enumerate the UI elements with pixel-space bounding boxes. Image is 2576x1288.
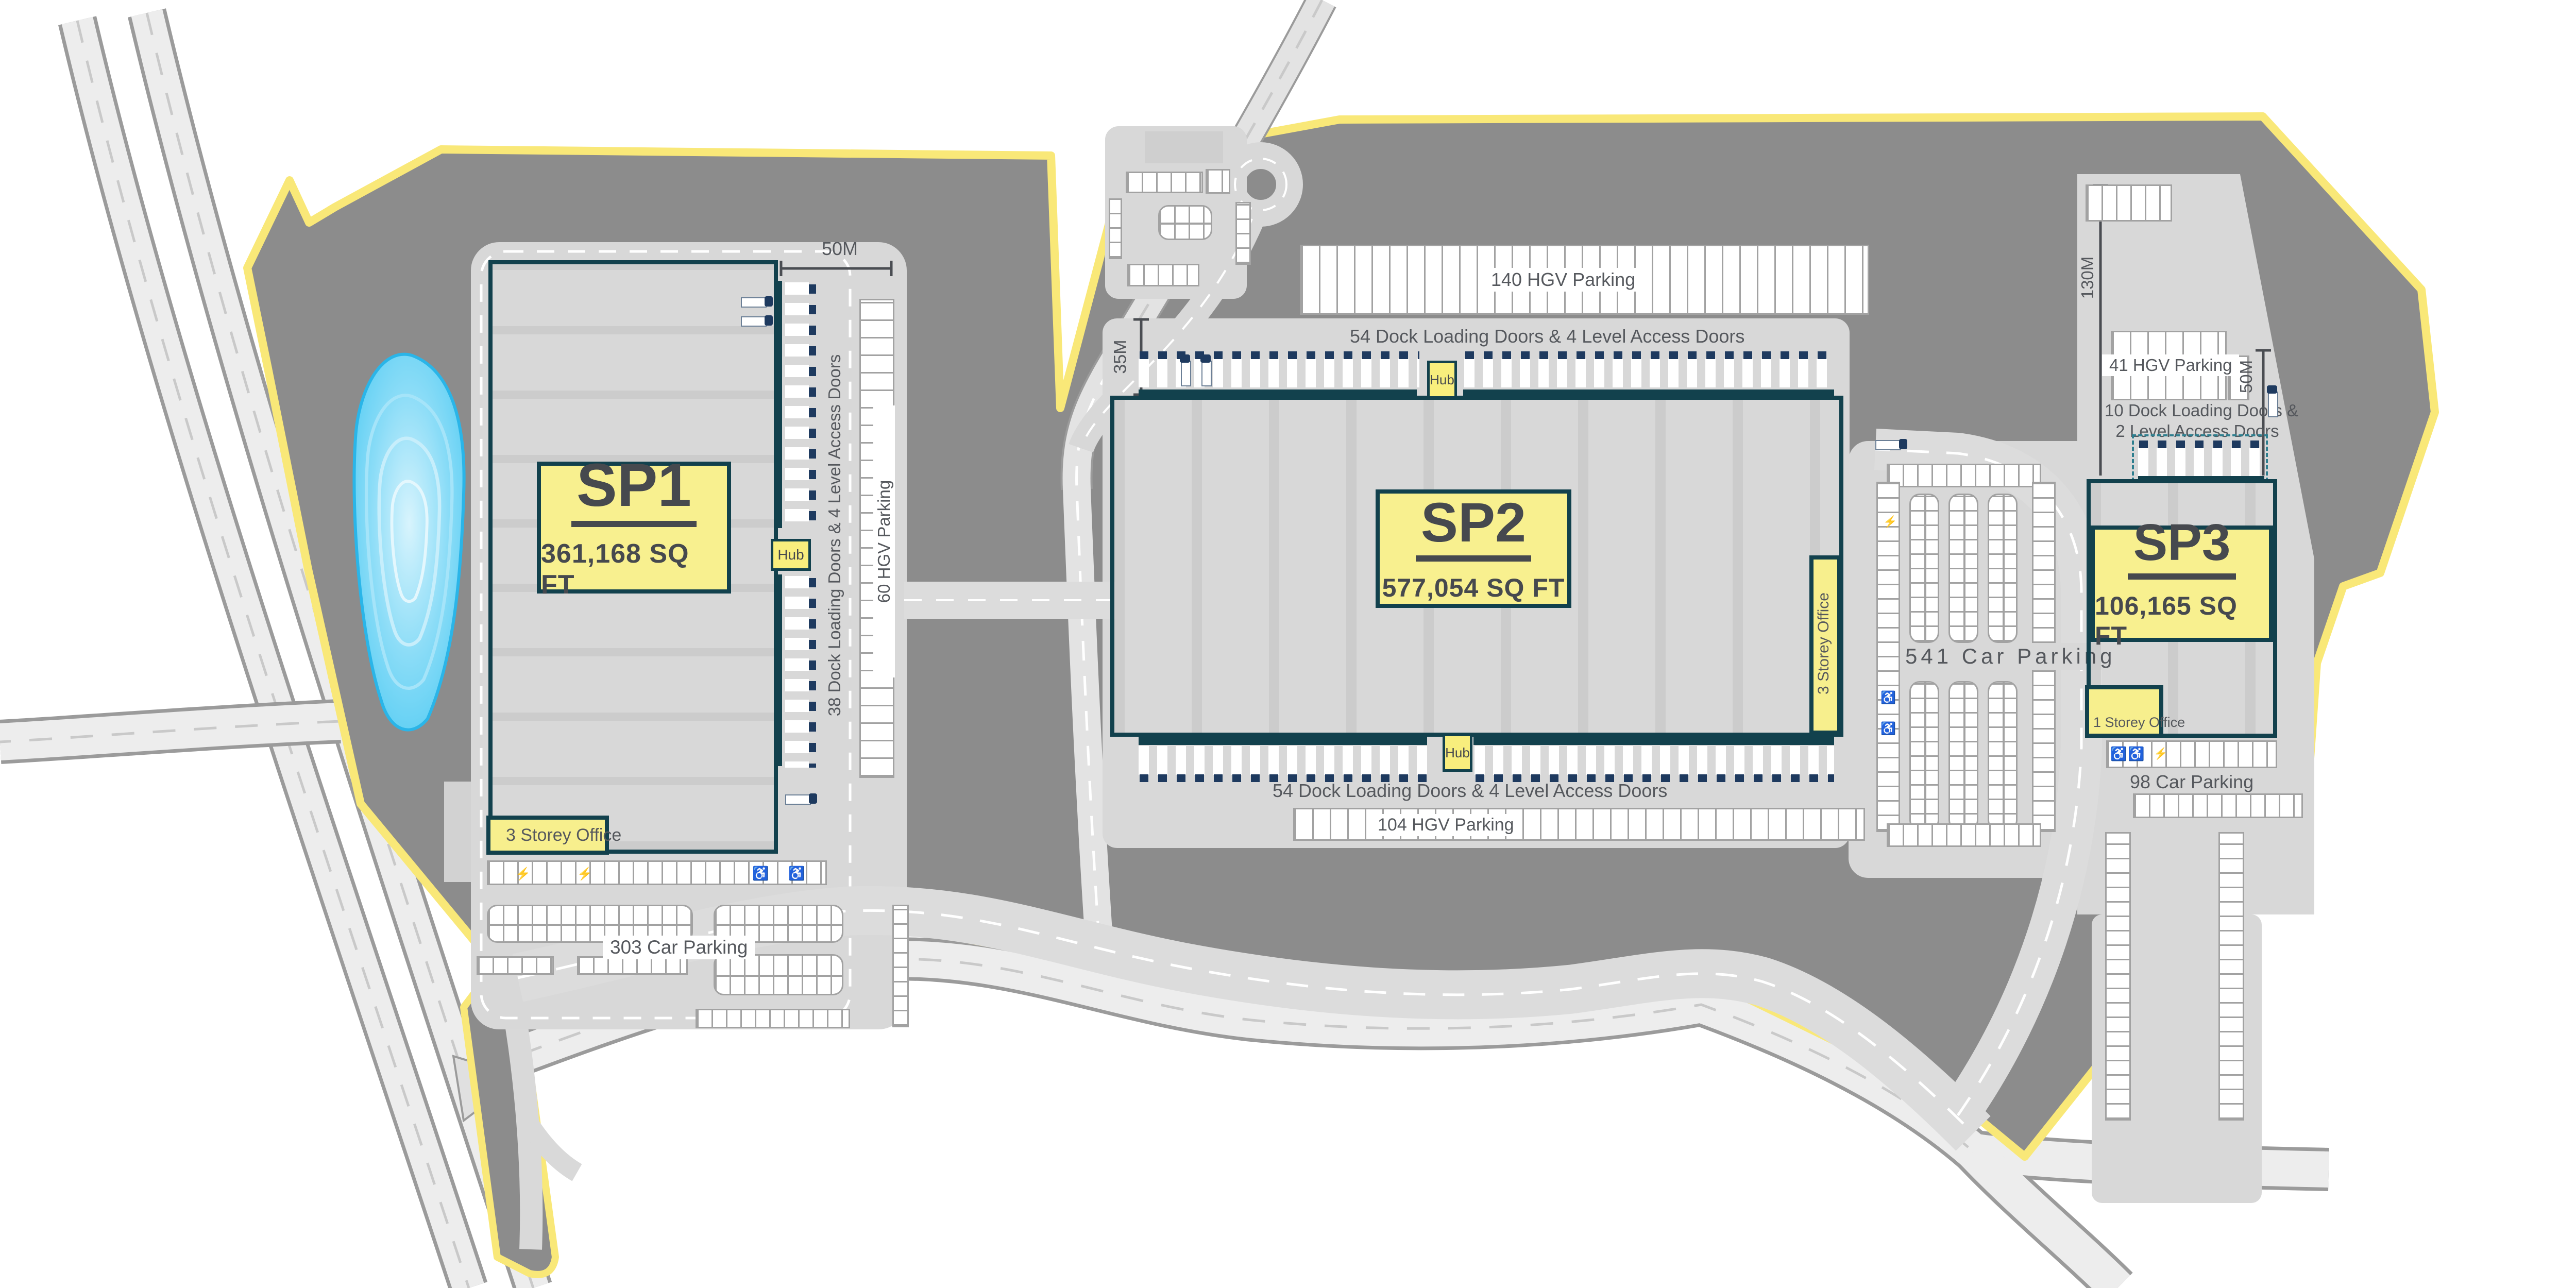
hgv-truck-icon — [1875, 439, 1907, 449]
disabled-icon: ♿ — [2110, 746, 2127, 762]
parking-divider — [488, 924, 691, 926]
parking-divider — [1963, 683, 1965, 829]
ev-icon: ⚡ — [1883, 515, 1897, 529]
sp3-parking-row-lower — [2133, 793, 2303, 818]
parking-541-row-bottom — [1887, 823, 2041, 847]
sp1-hub: Hub — [771, 539, 811, 571]
site-plan: SP1 361,168 SQ FT 3 Storey Office Hub 38… — [0, 0, 2576, 1288]
truck-body-icon — [1475, 746, 1834, 775]
disabled-icon: ♿ — [1880, 721, 1896, 736]
sp2-dock-bottom-label: 54 Dock Loading Doors & 4 Level Access D… — [1273, 780, 1667, 802]
ev-icon: ⚡ — [515, 867, 531, 882]
sp3-parking-col-b — [2218, 832, 2244, 1121]
truck-cab-icon — [1465, 351, 1834, 359]
parking-541-island — [1988, 681, 2018, 831]
parking-divider — [1160, 223, 1211, 225]
sp1-parking-row-left — [477, 956, 554, 975]
sp2-dock-top-label: 54 Dock Loading Doors & 4 Level Access D… — [1350, 326, 1744, 347]
disabled-icon: ♿ — [2128, 746, 2144, 762]
parking-541-col-left — [1876, 482, 1900, 832]
amenity-parking-disabled — [1206, 169, 1230, 194]
sp1-dim-width: 50M — [804, 238, 876, 260]
hgv-truck-icon — [1180, 354, 1190, 386]
parking-divider — [2003, 683, 2005, 829]
sp2-hub-top-label: Hub — [1430, 372, 1454, 388]
hgv-truck-icon — [1200, 354, 1211, 386]
sp3-hgv-strip-top — [2086, 184, 2172, 222]
sp1-dock-label: 38 Dock Loading Doors & 4 Level Access D… — [825, 278, 844, 793]
hgv-truck-icon — [785, 793, 817, 804]
ev-icon: ⚡ — [2154, 747, 2167, 760]
sp3-parking-col-a — [2105, 832, 2131, 1121]
sp1-parking-col-right — [892, 905, 909, 1027]
truck-body-icon — [2138, 448, 2262, 477]
sp1-dock-trucks-lower — [785, 576, 816, 768]
sp1-dock-strip-upper — [776, 281, 782, 528]
parking-divider — [1963, 495, 1965, 641]
sp3-area: 106,165 SQ FT — [2095, 591, 2269, 651]
sp2-office-label: 3 Storey Office — [1815, 535, 1833, 752]
disabled-icon: ♿ — [752, 866, 769, 882]
sp1-parking-row-top — [487, 860, 827, 885]
sp2-dock-strip-bottom-a — [1139, 737, 1427, 745]
parking-541-island — [1948, 681, 1978, 831]
parking-divider — [2003, 495, 2005, 641]
sp3-dock-edge — [2138, 476, 2264, 481]
disabled-icon: ♿ — [788, 866, 805, 882]
sp1-hub-label: Hub — [777, 547, 804, 563]
sp2-hub-top: Hub — [1427, 361, 1457, 399]
hgv-truck-icon — [741, 296, 773, 307]
sp2-hgv-top-label: 140 HGV Parking — [1484, 268, 1642, 292]
sp3-dim-width: 50M — [2236, 335, 2256, 418]
truck-cab-icon — [2139, 440, 2262, 448]
parking-541-row-top — [1887, 464, 2041, 487]
amenity-building — [1145, 131, 1223, 163]
sp1-dock-trucks-upper — [785, 282, 816, 530]
amenity-parking-col-right — [1235, 202, 1251, 265]
sp1-office-label: 3 Storey Office — [490, 825, 621, 845]
sp3-dock-trucks — [2138, 440, 2262, 478]
sp2-dock-trucks-bottom-right — [1475, 746, 1834, 783]
parking-divider — [1924, 495, 1926, 641]
parking-541-island — [1988, 494, 2018, 643]
sp2-dock-strip-bottom-b — [1473, 737, 1834, 745]
sp1-area: 361,168 SQ FT — [541, 538, 727, 600]
truck-body-icon — [1139, 746, 1430, 775]
sp3-office: 1 Storey Office — [2085, 685, 2163, 738]
sp2-title: SP2 — [1416, 495, 1531, 562]
sp3-dock-label-line1: 10 Dock Loading Doors & — [2105, 401, 2290, 420]
sp3-hgv-label: 41 HGV Parking — [2102, 354, 2239, 376]
amenity-parking-island — [1158, 205, 1212, 240]
sp3-title: SP3 — [2128, 517, 2235, 580]
sp2-dock-strip-top-b — [1463, 389, 1834, 398]
sp2-dock-trucks-bottom-left — [1139, 746, 1430, 783]
sp3-office-label: 1 Storey Office — [2089, 715, 2185, 734]
truck-body-icon — [785, 576, 809, 768]
sp2-label-box: SP2 577,054 SQ FT — [1376, 489, 1571, 608]
amenity-parking-row-top — [1126, 172, 1203, 193]
parking-541-island — [1948, 494, 1978, 643]
truck-cab-icon — [809, 284, 816, 530]
sp3-label-box: SP3 106,165 SQ FT — [2091, 526, 2273, 642]
parking-divider — [715, 975, 842, 977]
sp2-dock-strip-top-a — [1139, 389, 1417, 398]
sp1-parking-island-c — [714, 954, 843, 995]
sp1-office: 3 Storey Office — [486, 816, 609, 855]
sp1-label-box: SP1 361,168 SQ FT — [537, 462, 731, 594]
truck-cab-icon — [809, 578, 816, 768]
sp1-title: SP1 — [571, 455, 697, 527]
parking-541-island — [1909, 681, 1939, 831]
parking-541-island — [1909, 494, 1939, 643]
sp1-car-label: 303 Car Parking — [603, 936, 755, 959]
hgv-truck-icon — [2267, 385, 2277, 417]
sp3-car-label: 98 Car Parking — [2123, 770, 2261, 794]
truck-body-icon — [1464, 359, 1834, 387]
sp1-hgv-label: 60 HGV Parking — [873, 405, 895, 677]
amenity-parking-row-bottom — [1127, 264, 1199, 286]
sp2-hub-bottom-label: Hub — [1445, 745, 1470, 761]
sp1-dock-strip-lower — [776, 574, 782, 766]
sp2-area: 577,054 SQ FT — [1382, 573, 1565, 603]
sp2-hgv-bottom-label: 104 HGV Parking — [1370, 814, 1521, 836]
sp2-hub-bottom: Hub — [1443, 734, 1472, 772]
amenity-parking-col-left — [1109, 198, 1122, 259]
sp3-dim-height: 130M — [2078, 226, 2097, 329]
truck-body-icon — [785, 282, 809, 530]
parking-divider — [715, 924, 842, 926]
disabled-icon: ♿ — [1880, 690, 1896, 705]
hgv-truck-icon — [741, 315, 773, 326]
sp2-dim-depth: 35M — [1111, 316, 1131, 398]
sp1-parking-row-bottom — [696, 1009, 850, 1028]
ev-icon: ⚡ — [577, 867, 592, 882]
parking-divider — [1924, 683, 1926, 829]
sp2-dock-trucks-top-right — [1464, 351, 1834, 388]
